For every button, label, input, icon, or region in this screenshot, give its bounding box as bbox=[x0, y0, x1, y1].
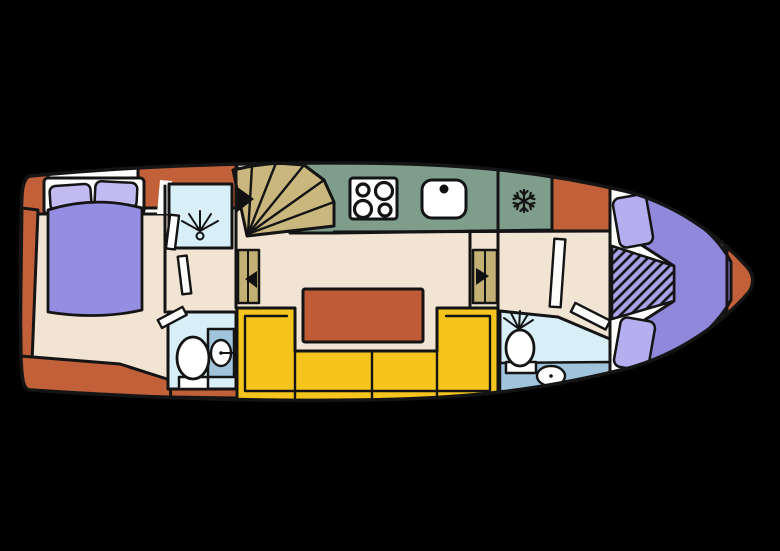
stove-icon bbox=[350, 178, 397, 219]
saloon-table bbox=[303, 289, 423, 342]
wardrobe-cabinet-left bbox=[238, 250, 259, 303]
boat-floor-plan bbox=[0, 0, 780, 551]
floor-plan-canvas bbox=[0, 0, 780, 551]
wardrobe-cabinet-right bbox=[473, 250, 497, 303]
toilet-icon bbox=[177, 337, 209, 389]
sink-icon bbox=[422, 180, 466, 218]
double-bed bbox=[44, 178, 144, 316]
bed-mattress bbox=[48, 202, 142, 315]
toilet-icon bbox=[506, 330, 536, 373]
aft-bathroom bbox=[168, 312, 243, 389]
bow-cushion-top bbox=[612, 193, 654, 248]
